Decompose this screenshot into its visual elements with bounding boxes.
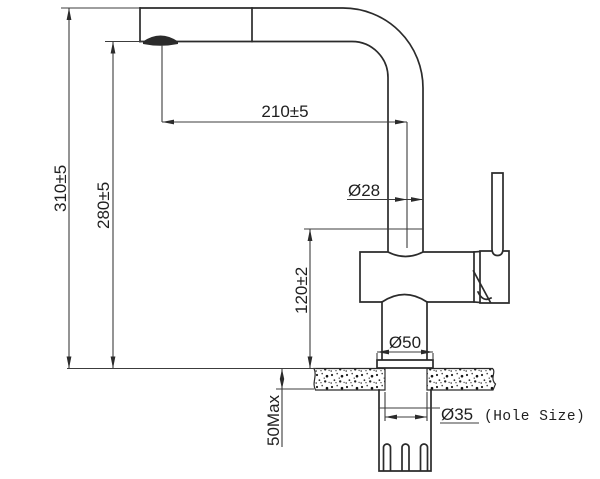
handle-lever	[492, 173, 503, 256]
handle-base	[480, 251, 509, 303]
dia-50-extensions	[377, 353, 433, 360]
faucet-installation-drawing: 310±5 280±5 210±5 Ø28 120±2 Ø50 Ø35 (Hol…	[0, 0, 600, 479]
spout-outer-contour	[140, 8, 423, 252]
aerator-dome	[143, 36, 178, 46]
shank-slots	[384, 444, 428, 470]
faucet-outline-group	[140, 8, 509, 471]
dim-280-label: 280±5	[94, 182, 113, 229]
dimension-group	[61, 8, 479, 447]
dim-210-label: 210±5	[261, 102, 308, 121]
countertop-right-slab	[427, 369, 496, 391]
base-plate	[377, 360, 433, 368]
hole-size-note-label: (Hole Size)	[484, 409, 585, 425]
handle-base-joint-top	[474, 252, 480, 253]
dim-310-label: 310±5	[51, 165, 70, 212]
dia-50-label: Ø50	[389, 333, 421, 352]
handle-base-joint-bottom	[474, 302, 480, 303]
dim-120-label: 120±2	[292, 267, 311, 314]
dia-28-label: Ø28	[348, 181, 380, 200]
spout-inner-contour	[140, 42, 388, 253]
mounting-shank	[379, 390, 431, 471]
countertop-left-slab	[314, 369, 385, 391]
technical-drawing-canvas: 310±5 280±5 210±5 Ø28 120±2 Ø50 Ø35 (Hol…	[0, 0, 600, 479]
mixer-body	[360, 252, 474, 302]
dim-50max-label: 50Max	[264, 394, 283, 446]
countertop-group	[314, 369, 496, 391]
dia-35-label: Ø35	[441, 405, 473, 424]
